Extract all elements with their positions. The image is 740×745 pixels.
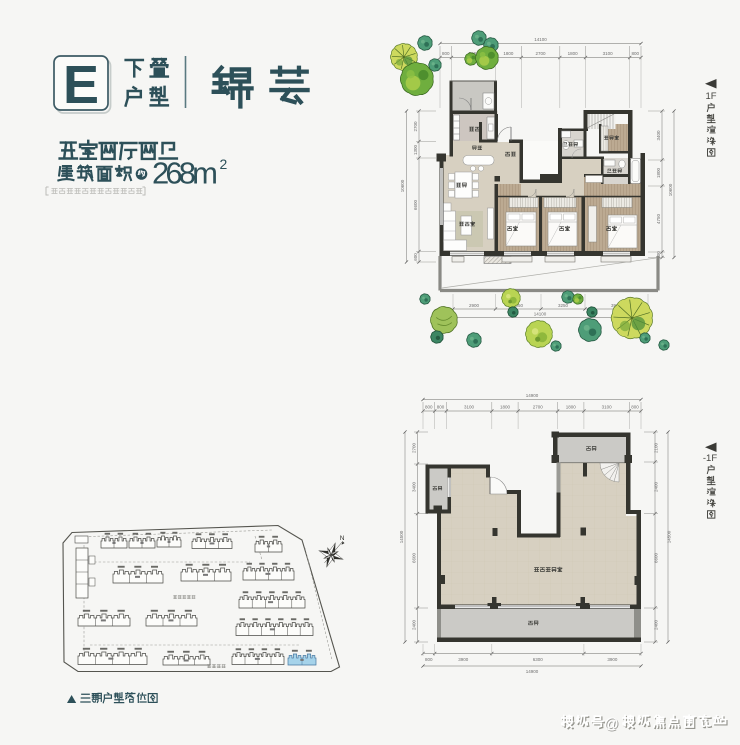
svg-text:2700: 2700 <box>535 51 546 56</box>
svg-text:2: 2 <box>220 156 228 172</box>
svg-text:14900: 14900 <box>526 669 539 674</box>
svg-text:6600: 6600 <box>654 552 659 563</box>
svg-text:3900: 3900 <box>607 657 618 662</box>
svg-text:1F: 1F <box>705 91 716 102</box>
svg-text:1800: 1800 <box>503 51 514 56</box>
svg-text:14500: 14500 <box>399 530 404 543</box>
svg-text:14500: 14500 <box>667 530 672 543</box>
svg-text:3400: 3400 <box>656 130 661 141</box>
svg-text:1800: 1800 <box>500 405 511 410</box>
svg-text:6600: 6600 <box>411 552 416 563</box>
svg-text:1800: 1800 <box>566 405 577 410</box>
svg-text:@: @ <box>604 717 619 733</box>
svg-text:3100: 3100 <box>603 51 614 56</box>
svg-text:800: 800 <box>425 657 433 662</box>
svg-text:600: 600 <box>413 253 418 261</box>
svg-text:3100: 3100 <box>602 405 613 410</box>
svg-text:-1F: -1F <box>703 453 717 464</box>
svg-text:14900: 14900 <box>526 393 539 398</box>
svg-text:3100: 3100 <box>464 405 475 410</box>
svg-text:1800: 1800 <box>568 51 579 56</box>
svg-text:800: 800 <box>442 51 450 56</box>
svg-text:4750: 4750 <box>656 213 661 224</box>
svg-text:10600: 10600 <box>668 183 673 196</box>
svg-text:800: 800 <box>437 405 445 410</box>
svg-text:800: 800 <box>632 51 640 56</box>
svg-text:E: E <box>63 55 99 115</box>
svg-text:2700: 2700 <box>411 442 416 453</box>
svg-text:10600: 10600 <box>400 179 405 192</box>
svg-text:1300: 1300 <box>413 144 418 155</box>
svg-text:6600: 6600 <box>413 199 418 210</box>
svg-text:2400: 2400 <box>654 481 659 492</box>
svg-text:2700: 2700 <box>413 121 418 132</box>
svg-text:3400: 3400 <box>411 481 416 492</box>
svg-text:3900: 3900 <box>458 657 469 662</box>
svg-text:2400: 2400 <box>654 619 659 630</box>
svg-text:14100: 14100 <box>534 311 547 316</box>
svg-text:800: 800 <box>425 405 433 410</box>
svg-text:1800: 1800 <box>656 167 661 178</box>
svg-text:6300: 6300 <box>533 657 544 662</box>
svg-text:2100: 2100 <box>654 442 659 453</box>
svg-text:800: 800 <box>631 405 639 410</box>
svg-text:2400: 2400 <box>411 619 416 630</box>
svg-text:2700: 2700 <box>533 405 544 410</box>
svg-text:2900: 2900 <box>469 303 480 308</box>
svg-text:N: N <box>340 535 345 542</box>
svg-text:268m: 268m <box>152 156 218 191</box>
svg-text:14100: 14100 <box>534 37 547 42</box>
